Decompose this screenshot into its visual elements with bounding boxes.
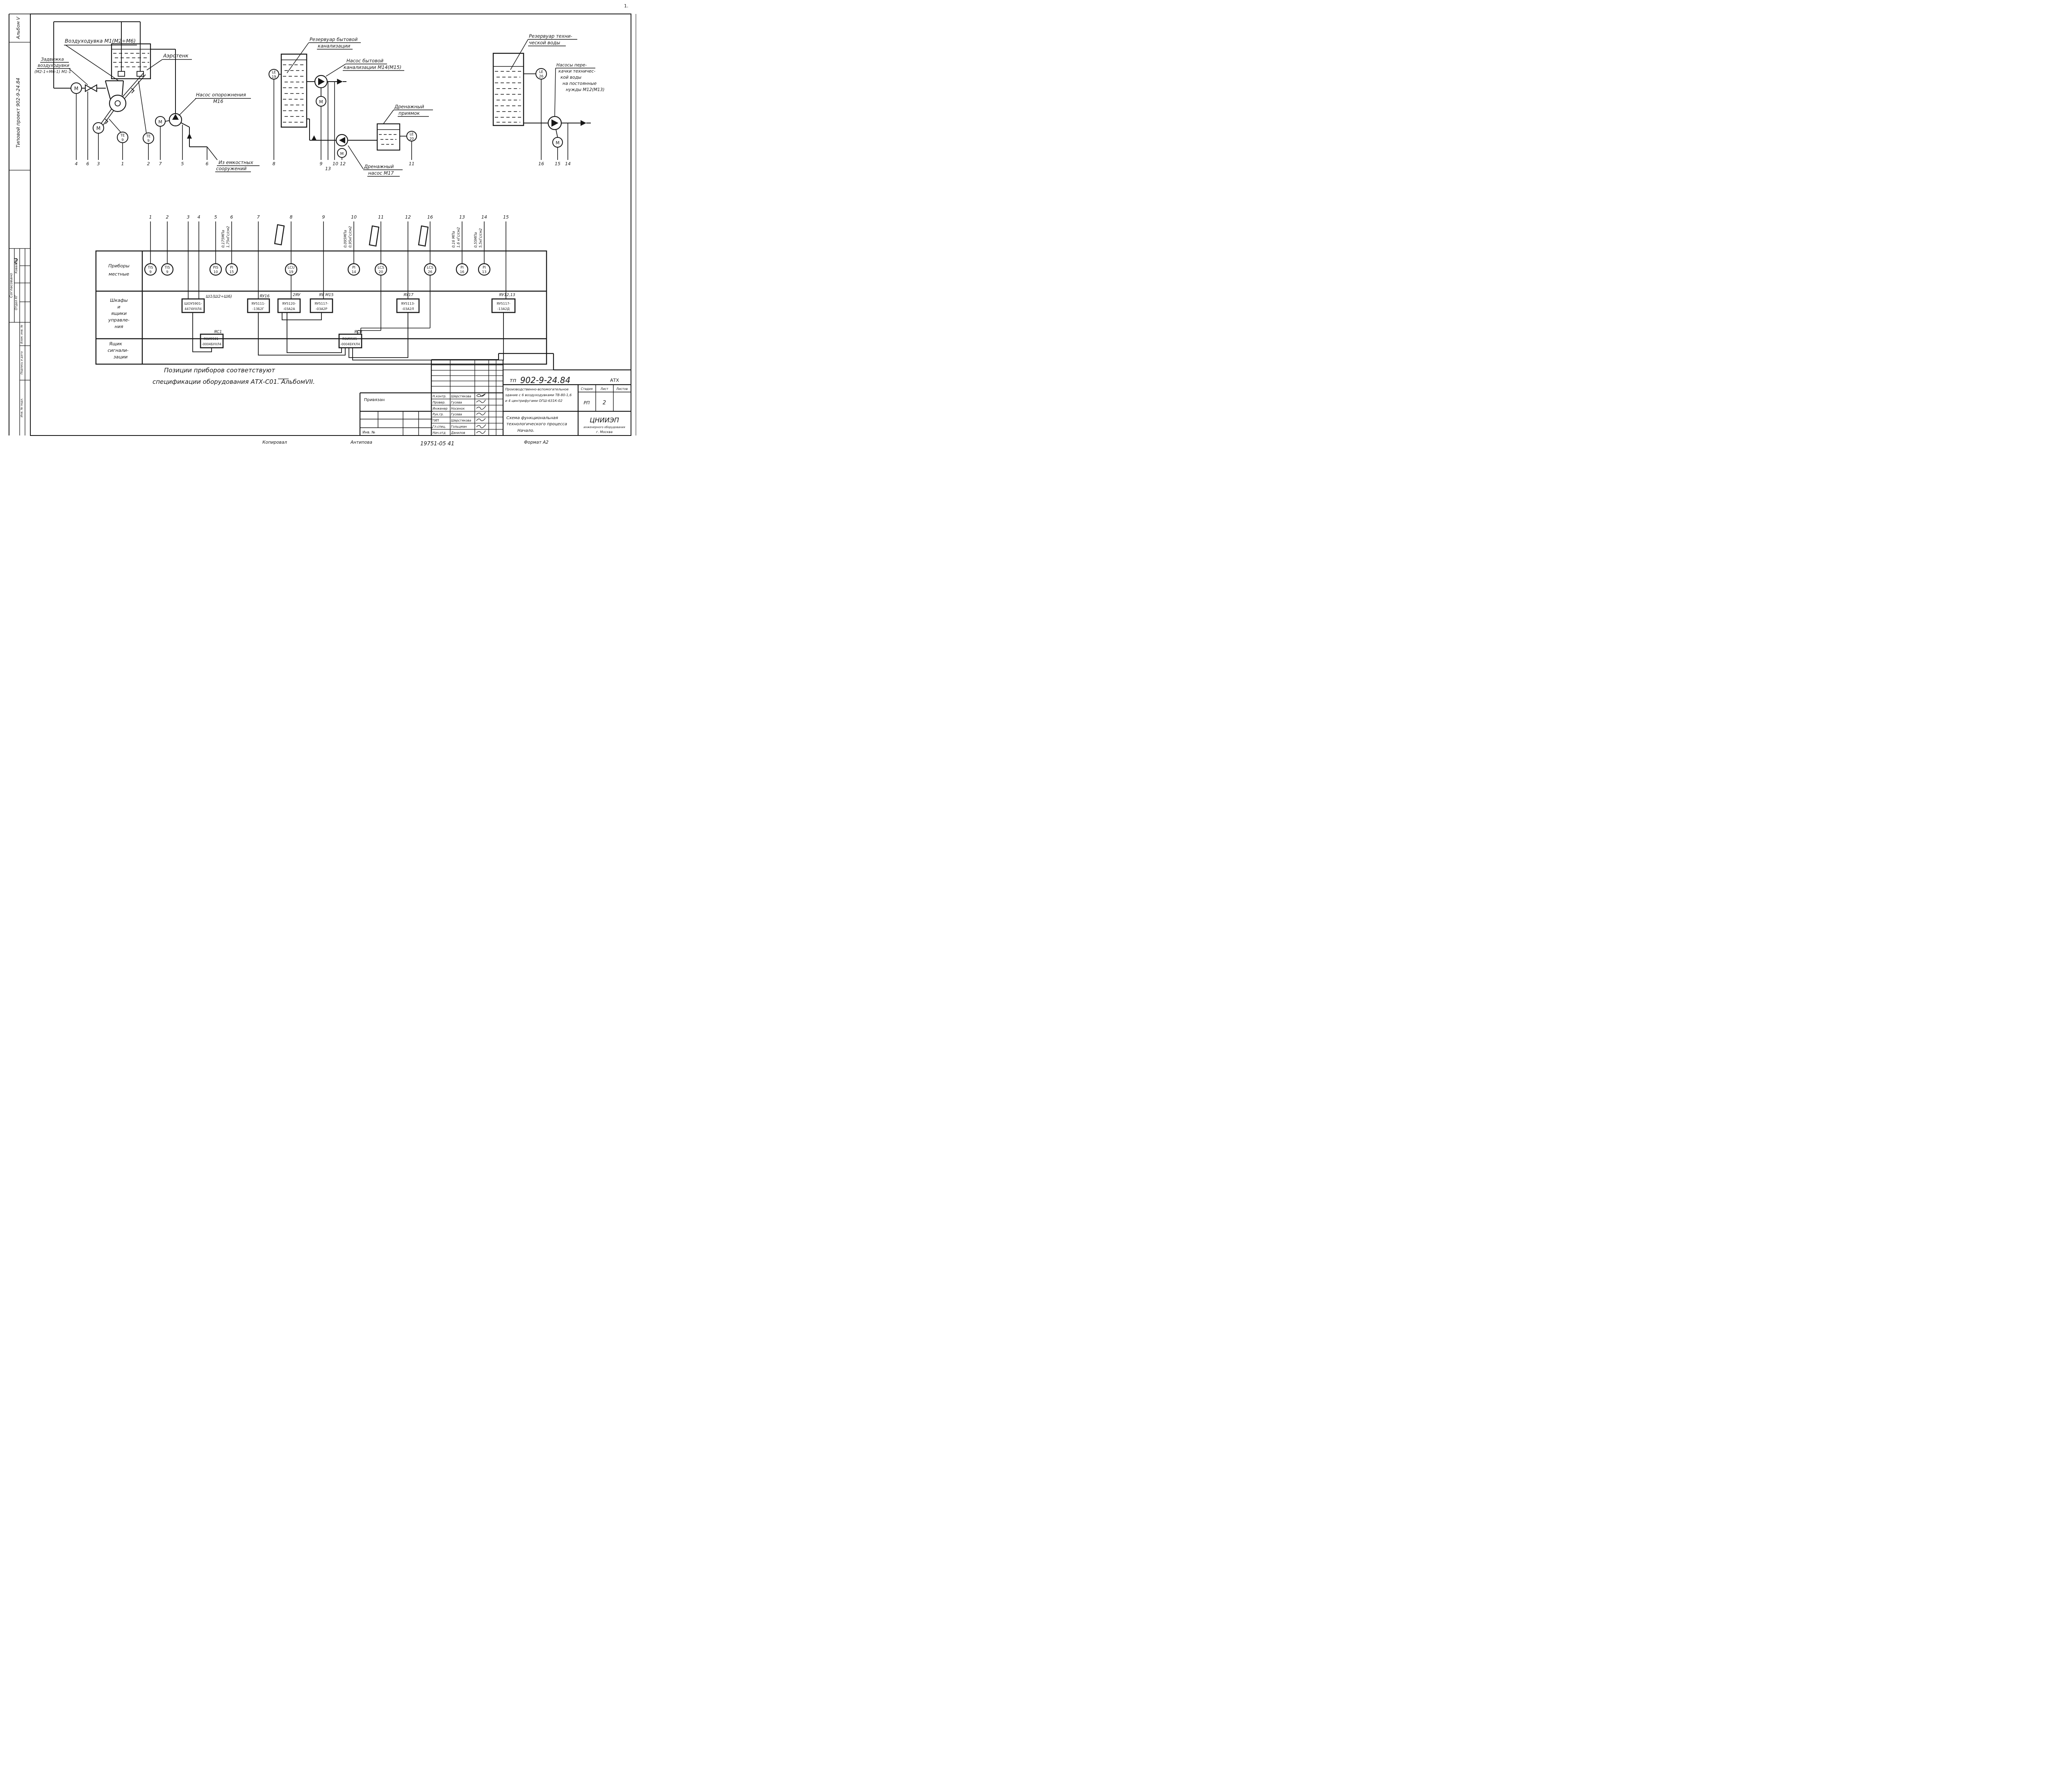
blower-valve: М — [54, 83, 106, 93]
svg-text:инженерного оборудования: инженерного оборудования — [583, 426, 625, 429]
svg-text:9: 9 — [147, 139, 149, 143]
pump-m16-label-1: Насос опорожнения — [196, 92, 246, 98]
svg-text:РП: РП — [584, 400, 590, 406]
svg-text:10: 10 — [351, 214, 357, 220]
object-name: Производственно-вспомогательное здание с… — [505, 387, 572, 403]
svg-text:19: 19 — [272, 75, 276, 79]
svg-text:Производственно-вспомогательно: Производственно-вспомогательное — [505, 387, 569, 391]
corner-mark: 1. — [624, 3, 629, 9]
source-label-2: сооружений — [216, 166, 247, 171]
techwater-tank — [493, 53, 524, 125]
d1-line-numbers: 4 6 3 1 2 7 5 6 — [75, 161, 209, 166]
svg-text:ЯУ М15: ЯУ М15 — [319, 293, 334, 297]
process-diagram-svg: 1. Альбом V Типовой проект 902-9-24.84 С… — [0, 0, 654, 448]
svg-text:4: 4 — [75, 161, 78, 166]
svg-text:ЯС1: ЯС1 — [214, 330, 222, 334]
svg-text:13: 13 — [459, 214, 465, 220]
svg-text:1,75кГс/см2: 1,75кГс/см2 — [226, 226, 230, 248]
bottom-margin: Копировал Антипова 19751-05 41 Формат А2 — [262, 440, 549, 447]
sewage-tank-label-1: Резервуар бытовой — [310, 36, 358, 42]
valve-label-1: Задвижка — [41, 57, 64, 62]
techwater-pump-label-1: Насосы пере- — [556, 63, 587, 68]
pressure-notes: 0,175МПа 1,75кГс/см2 0,095МПа 0,95кГс/см… — [221, 226, 483, 248]
organization: ЦНИИЭП инженерного оборудования г. Москв… — [583, 416, 625, 434]
svg-text:1: 1 — [121, 161, 124, 166]
motor-letter: М — [340, 152, 344, 156]
svg-text:ЯУ5120-: ЯУ5120- — [282, 302, 296, 306]
svg-text:ТЕ: ТЕ — [120, 134, 125, 138]
drain-pit — [377, 124, 400, 150]
stage-block: Стадия Лист Листов РП 2 — [581, 387, 628, 406]
sewage-pump-label-2: канализации М14(М15) — [344, 64, 401, 70]
blower-label: Воздуходувка М1(М2÷М6) — [65, 38, 136, 44]
staff-rows: Н.контр. Шерстякова Провер. Гусева Инжен… — [433, 394, 471, 435]
drain-pit-label-2: приямок — [399, 110, 420, 116]
table-row-labels: Приборы местные Шкафы и ящики управле- н… — [107, 263, 130, 360]
svg-text:ЯОИ9501-: ЯОИ9501- — [204, 337, 220, 341]
techwater-pump-label-4: на постоянные — [563, 81, 597, 86]
left-margin: Альбом V Типовой проект 902-9-24.84 Согл… — [9, 16, 30, 435]
note: Позиции приборов соответствуют специфика… — [153, 367, 315, 385]
scheme-name: Схема функциональная технологического пр… — [506, 416, 567, 433]
svg-text:3: 3 — [97, 161, 100, 166]
svg-text:Ш1(Ш2÷Ш6): Ш1(Ш2÷Ш6) — [206, 294, 232, 299]
svg-text:ТЕ: ТЕ — [146, 135, 151, 139]
inv-no-label: Инв. № — [362, 431, 375, 435]
svg-text:TIS: TIS — [147, 266, 153, 270]
svg-text:ГИП: ГИП — [433, 419, 439, 422]
techwater-diagram: Резервуар техни- ческой воды LE 26 М Нас… — [493, 33, 604, 166]
svg-text:6: 6 — [230, 214, 233, 220]
margin-album: Альбом V — [16, 16, 21, 39]
svg-text:7: 7 — [159, 161, 162, 166]
svg-text:Гусева: Гусева — [451, 401, 462, 404]
svg-text:-13Б2Г: -13Б2Г — [253, 307, 264, 311]
svg-text:5: 5 — [214, 214, 217, 220]
svg-text:9: 9 — [166, 270, 168, 274]
svg-text:4: 4 — [198, 214, 200, 220]
svg-text:13: 13 — [482, 270, 487, 274]
te-sensor-1: ТЕ 9 — [109, 119, 128, 143]
sewage-tank — [281, 54, 307, 127]
svg-text:здание с 6 воздуходувками ТВ-8: здание с 6 воздуходувками ТВ-80-1,6 — [505, 393, 572, 397]
pump-m16-label-2: М16 — [213, 98, 223, 104]
pump-m16: М — [150, 49, 207, 147]
svg-text:PI: PI — [352, 266, 355, 270]
svg-text:-0004БУХЛ4: -0004БУХЛ4 — [340, 342, 360, 346]
svg-text:Носенок: Носенок — [451, 407, 465, 410]
svg-text:Инженер: Инженер — [433, 407, 448, 410]
svg-text:Стадия: Стадия — [581, 387, 593, 391]
sewage-pump-label-1: Насос бытовой — [346, 58, 384, 64]
svg-text:Гл.спец.: Гл.спец. — [433, 425, 446, 429]
svg-text:Шерстякова: Шерстякова — [451, 419, 471, 422]
motor-letter: М — [319, 99, 323, 105]
table-line-numbers: 1 2 3 4 5 6 7 8 9 10 11 12 16 13 14 15 — [149, 214, 509, 220]
doc-prefix: тп — [510, 378, 517, 384]
te-sensor-2: ТЕ 9 — [139, 81, 154, 144]
svg-text:2: 2 — [603, 400, 606, 406]
svg-text:-13А2Д: -13А2Д — [497, 307, 510, 311]
svg-text:14: 14 — [352, 270, 356, 274]
svg-text:-03А2А: -03А2А — [283, 307, 295, 311]
svg-text:8: 8 — [290, 214, 293, 220]
svg-text:ЯУ5117-: ЯУ5117- — [497, 302, 510, 306]
svg-text:-03А2Л: -03А2Л — [402, 307, 414, 311]
signature-marks — [14, 258, 486, 433]
svg-text:Позиции приборов соответствуют: Позиции приборов соответствуют — [164, 367, 276, 374]
svg-text:спецификации оборудования АТХ-: спецификации оборудования АТХ-С01. Альбо… — [153, 378, 315, 385]
svg-text:0,55МПа: 0,55МПа — [474, 232, 478, 248]
svg-text:2ЯУ: 2ЯУ — [293, 293, 301, 297]
svg-text:11: 11 — [378, 214, 384, 220]
motor-letter: М — [96, 125, 100, 131]
aerotank — [112, 44, 150, 79]
svg-text:зации: зации — [114, 354, 128, 360]
svg-text:Нач.отд: Нач.отд — [433, 431, 446, 435]
svg-text:ЦНИИЭП: ЦНИИЭП — [590, 416, 619, 424]
svg-text:19: 19 — [289, 270, 294, 274]
svg-text:PI: PI — [460, 266, 464, 270]
motor-letter: М — [74, 86, 78, 91]
margin-vzam-inv: Взам. инв. № — [20, 325, 23, 344]
svg-text:15: 15 — [503, 214, 509, 220]
svg-text:9: 9 — [121, 138, 123, 142]
margin-otdel: Отдел КГ — [14, 295, 18, 310]
drain-pump-label-1: Дренажный — [364, 164, 394, 169]
svg-text:TIS: TIS — [164, 266, 170, 270]
svg-text:0,095МПа: 0,095МПа — [344, 230, 348, 248]
svg-text:ЯУ12,13: ЯУ12,13 — [499, 293, 515, 297]
svg-text:10: 10 — [214, 270, 218, 274]
svg-text:-0004БУХЛ4: -0004БУХЛ4 — [202, 342, 221, 346]
svg-text:ШОУ5901-: ШОУ5901- — [184, 302, 202, 306]
motor-letter: М — [556, 140, 560, 146]
svg-text:PI: PI — [483, 266, 486, 270]
svg-text:Копировал: Копировал — [262, 440, 287, 445]
local-instruments: TIS 9 TIS 9 PIS 10 PI 15 LCU 19 PI 14 LC… — [145, 264, 490, 275]
svg-text:ящики: ящики — [111, 311, 127, 316]
le19-sensor: LE 19 — [269, 69, 281, 160]
svg-text:LE: LE — [410, 132, 414, 137]
svg-text:LCU: LCU — [288, 266, 295, 270]
svg-text:LCS: LCS — [427, 266, 433, 270]
svg-text:Ящик: Ящик — [109, 341, 122, 347]
svg-text:1: 1 — [149, 214, 152, 220]
source-label-1: Из емкостных — [219, 160, 253, 165]
le26-sensor: LE 26 — [524, 68, 547, 160]
doc-number: 902-9-24.84 — [520, 375, 571, 385]
title-block: Привязан Инв. № Н.контр. Шерстякова Пров… — [14, 258, 631, 435]
svg-text:14: 14 — [481, 214, 487, 220]
sewage-tank-label-2: канализации — [318, 43, 351, 49]
techwater-tank-label-1: Резервуар техни- — [529, 33, 572, 39]
svg-text:12: 12 — [340, 161, 346, 166]
d3-line-numbers: 16 15 14 — [538, 161, 571, 166]
svg-text:16: 16 — [538, 161, 544, 166]
svg-text:26: 26 — [539, 75, 544, 79]
valve-label-2: воздуходувки — [38, 63, 69, 68]
svg-text:Антипова: Антипова — [350, 440, 372, 445]
svg-text:LCS: LCS — [378, 266, 384, 270]
control-boxes: ШОУ5901- 4474УХЛ4 Ш1(Ш2÷Ш6) ЯУ5111- -13Б… — [182, 293, 515, 312]
svg-text:15: 15 — [555, 161, 560, 166]
svg-text:Гольцман: Гольцман — [451, 425, 467, 429]
techwater-pump-label-2: качки техничес- — [558, 69, 595, 74]
svg-text:ЯУ17: ЯУ17 — [403, 293, 413, 297]
svg-text:Рук.гр.: Рук.гр. — [433, 413, 444, 416]
blower-diagram: Аэротенк Воздуходувка М1(М2÷М6) М — [34, 22, 260, 172]
svg-text:12: 12 — [405, 214, 411, 220]
svg-text:8: 8 — [273, 161, 276, 166]
svg-text:LE: LE — [539, 70, 543, 74]
svg-text:19751-05 41: 19751-05 41 — [420, 441, 454, 447]
svg-text:2: 2 — [166, 214, 169, 220]
svg-text:ЯУ5111-: ЯУ5111- — [251, 302, 265, 306]
svg-text:7: 7 — [257, 214, 260, 220]
margin-podpis-data: Подпись и дата — [20, 351, 23, 374]
svg-text:ния: ния — [115, 324, 123, 329]
margin-soglasovano: Согласовано — [9, 273, 14, 298]
signal-table: Приборы местные Шкафы и ящики управле- н… — [96, 214, 547, 364]
doc-code: АТХ — [610, 378, 619, 383]
svg-text:ЯУ5117-: ЯУ5117- — [314, 302, 328, 306]
sewage-pump: М — [307, 75, 346, 106]
svg-text:10: 10 — [333, 161, 338, 166]
svg-text:Формат А2: Формат А2 — [524, 440, 549, 445]
svg-text:20: 20 — [410, 137, 414, 141]
svg-text:13: 13 — [325, 166, 331, 171]
svg-text:2: 2 — [147, 161, 150, 166]
svg-text:местные: местные — [109, 271, 129, 277]
margin-inv-podl: Инв. № подл. — [20, 398, 23, 417]
svg-text:Листов: Листов — [616, 387, 628, 391]
techwater-pump: М — [524, 116, 591, 147]
privyazan-label: Привязан — [364, 398, 385, 402]
svg-text:управле-: управле- — [108, 317, 130, 323]
svg-text:Шкафы: Шкафы — [110, 298, 128, 303]
svg-text:технологического процесса: технологического процесса — [506, 422, 567, 426]
svg-text:9: 9 — [149, 270, 151, 274]
margin-project: Типовой проект 902-9-24.84 — [15, 78, 21, 148]
svg-text:и: и — [117, 304, 120, 310]
svg-text:сигнали-: сигнали- — [107, 348, 128, 353]
svg-text:3: 3 — [187, 214, 190, 220]
svg-text:14: 14 — [565, 161, 571, 166]
svg-text:Провер.: Провер. — [433, 401, 446, 404]
drawing-sheet: 1. Альбом V Типовой проект 902-9-24.84 С… — [0, 0, 654, 448]
drain-pump-label-2: насос М17 — [368, 170, 394, 176]
svg-text:5: 5 — [181, 161, 184, 166]
svg-text:11: 11 — [409, 161, 415, 166]
svg-text:4474УХЛ4: 4474УХЛ4 — [184, 307, 202, 311]
svg-text:Гусева: Гусева — [451, 413, 462, 416]
svg-text:ЯУ5113-: ЯУ5113- — [401, 302, 415, 306]
le20-sensor: LE 20 — [400, 131, 417, 160]
sewage-diagram: Резервуар бытовой канализации LE 19 М На… — [269, 36, 433, 176]
techwater-pump-label-5: нужды М12(М13) — [566, 87, 604, 92]
svg-text:Данилов: Данилов — [451, 431, 465, 435]
svg-text:26: 26 — [428, 270, 433, 274]
drain-pit-label-1: Дренажный — [394, 104, 424, 109]
svg-text:Лист: Лист — [600, 387, 608, 391]
valve-label-3: (М2-1÷М6-1) М1-1 — [34, 70, 71, 74]
svg-text:ЯСВ: ЯСВ — [354, 330, 362, 334]
svg-text:PI: PI — [230, 266, 233, 270]
svg-text:6: 6 — [206, 161, 209, 166]
svg-text:PIS: PIS — [213, 266, 218, 270]
svg-text:5,5кГс/см2: 5,5кГс/см2 — [479, 228, 483, 248]
svg-text:0,95кГс/см2: 0,95кГс/см2 — [348, 226, 353, 248]
svg-text:и 4 центрифугами ОГШ-631К-02: и 4 центрифугами ОГШ-631К-02 — [505, 399, 563, 403]
svg-text:Приборы: Приборы — [108, 263, 130, 269]
svg-text:16: 16 — [460, 270, 465, 274]
svg-text:20: 20 — [379, 270, 383, 274]
svg-text:16: 16 — [427, 214, 433, 220]
svg-text:0,175МПа: 0,175МПа — [221, 230, 225, 248]
svg-text:Шерстякова: Шерстякова — [451, 394, 471, 398]
svg-text:1,6 кГс/см2: 1,6 кГс/см2 — [457, 227, 461, 248]
svg-text:0,16 МПа: 0,16 МПа — [452, 231, 456, 248]
drain-pump: М — [336, 135, 348, 160]
svg-text:9: 9 — [322, 214, 325, 220]
svg-text:15: 15 — [230, 270, 234, 274]
svg-text:6: 6 — [87, 161, 89, 166]
svg-text:ЯОИ9501-: ЯОИ9501- — [342, 337, 358, 341]
motor-letter: М — [158, 119, 162, 125]
svg-text:Схема функциональная: Схема функциональная — [506, 416, 558, 420]
svg-text:-03А2Р: -03А2Р — [316, 307, 328, 311]
svg-text:9: 9 — [320, 161, 323, 166]
box-wiring — [193, 312, 503, 360]
svg-text:Н.контр.: Н.контр. — [433, 394, 446, 398]
svg-text:г. Москва: г. Москва — [596, 430, 613, 434]
svg-text:Начало.: Начало. — [517, 429, 534, 433]
svg-text:LE: LE — [272, 71, 276, 75]
techwater-tank-label-2: ческой воды — [529, 40, 560, 46]
svg-text:ЯУ16: ЯУ16 — [259, 294, 269, 299]
techwater-pump-label-3: кой воды — [560, 75, 581, 80]
